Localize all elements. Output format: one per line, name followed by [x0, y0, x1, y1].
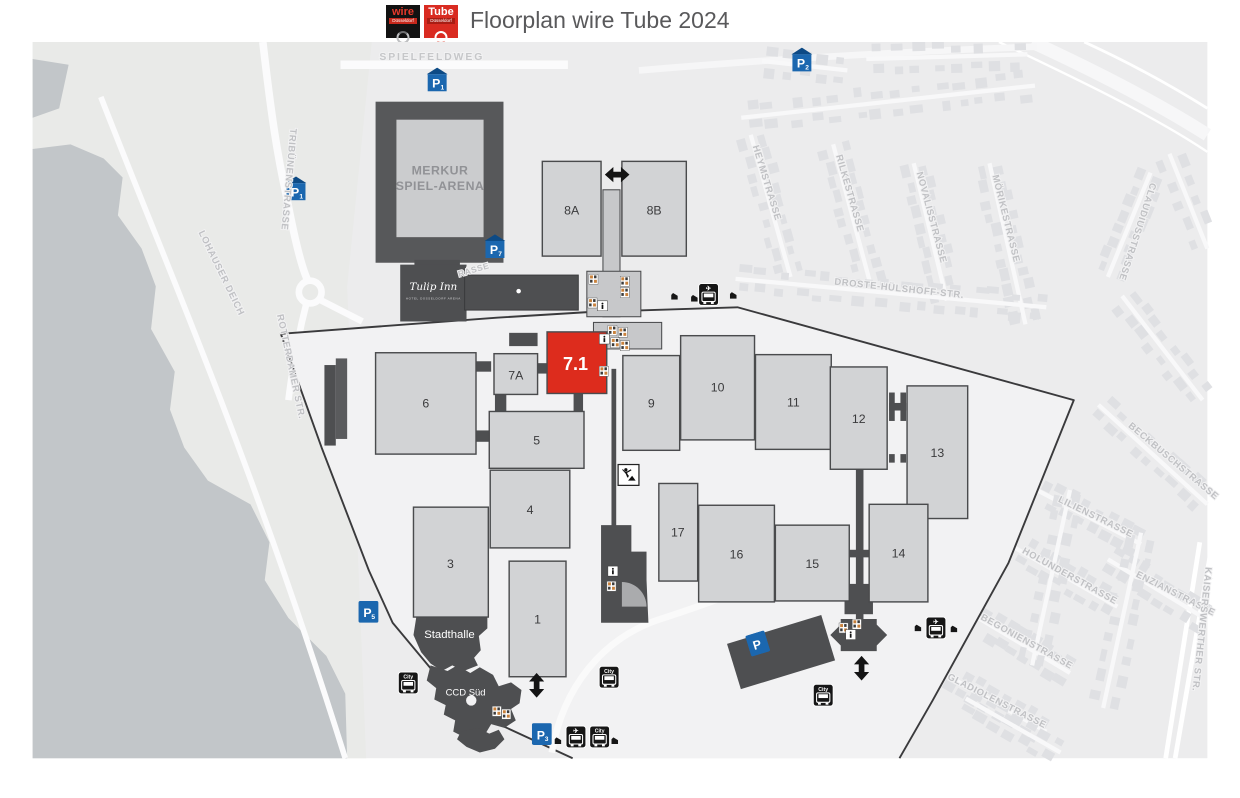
- svg-text:12: 12: [852, 412, 866, 426]
- svg-text:P: P: [490, 243, 498, 257]
- house: [891, 44, 903, 51]
- house: [951, 64, 962, 73]
- house: [805, 270, 816, 277]
- hall-7a[interactable]: 7A: [494, 354, 538, 395]
- house: [858, 112, 867, 119]
- house: [997, 308, 1008, 315]
- street-label: SPIELFELDWEG: [379, 52, 484, 63]
- connector: [889, 454, 895, 463]
- hall-12[interactable]: 12: [830, 367, 887, 469]
- parkhaus-strip: [465, 275, 579, 310]
- hall-10[interactable]: 10: [681, 336, 755, 440]
- hall-5[interactable]: 5: [489, 411, 584, 468]
- house: [871, 91, 884, 99]
- escalator-icon: [589, 274, 598, 284]
- house: [955, 306, 966, 315]
- connector: [889, 403, 906, 411]
- info-icon: [597, 301, 607, 311]
- house: [812, 112, 824, 121]
- connector: [476, 430, 490, 441]
- svg-text:5: 5: [371, 614, 375, 621]
- svg-text:City: City: [595, 729, 605, 735]
- escalator-icon: [620, 276, 629, 286]
- connector: [574, 393, 583, 412]
- house: [826, 95, 838, 104]
- hall-6[interactable]: 6: [376, 353, 476, 454]
- house: [820, 271, 830, 281]
- parking-p3-icon[interactable]: P 3: [532, 723, 552, 745]
- svg-text:7: 7: [498, 251, 502, 258]
- hall-15[interactable]: 15: [775, 525, 849, 601]
- house: [875, 298, 888, 308]
- connector: [495, 394, 506, 412]
- house: [1020, 94, 1033, 103]
- house: [989, 61, 1001, 71]
- stand-building: [336, 358, 347, 439]
- city-bus-icon: City: [813, 684, 833, 706]
- hall-8b[interactable]: 8B: [622, 161, 686, 256]
- house: [872, 43, 881, 51]
- house: [932, 42, 944, 49]
- merkur-spiel-arena: MERKUR SPIEL-ARENA: [376, 102, 504, 263]
- tube-logo-text: Tube: [424, 6, 458, 18]
- escalator-icon: [620, 340, 629, 350]
- house: [754, 283, 765, 292]
- hall-17[interactable]: 17: [659, 483, 698, 581]
- house: [763, 68, 775, 79]
- house: [833, 76, 843, 83]
- svg-text:5: 5: [533, 434, 540, 448]
- house: [895, 66, 903, 74]
- wire-logo-city: Düsseldorf: [389, 18, 417, 24]
- house: [816, 54, 829, 66]
- svg-text:P: P: [363, 606, 371, 620]
- svg-text:8A: 8A: [564, 203, 580, 217]
- house: [969, 307, 978, 318]
- house: [829, 295, 842, 302]
- svg-text:P: P: [432, 76, 440, 90]
- house: [1120, 558, 1130, 568]
- hall-3[interactable]: 3: [413, 507, 488, 617]
- svg-text:1: 1: [534, 613, 541, 627]
- escalator-icon: [588, 298, 597, 308]
- house: [853, 87, 862, 97]
- house: [1008, 312, 1021, 322]
- house: [797, 288, 810, 296]
- house: [873, 64, 884, 74]
- info-icon: [845, 629, 855, 639]
- house: [1103, 632, 1113, 642]
- house: [974, 43, 983, 53]
- escalator-icon: [852, 619, 861, 629]
- info-icon: [599, 334, 609, 344]
- hall-1[interactable]: 1: [509, 561, 566, 677]
- house: [749, 118, 763, 127]
- svg-text:17: 17: [671, 526, 685, 540]
- house: [766, 46, 779, 57]
- svg-text:P: P: [537, 728, 545, 742]
- house: [851, 296, 864, 307]
- svg-text:14: 14: [892, 546, 906, 560]
- house: [782, 72, 791, 80]
- house: [942, 101, 951, 112]
- house: [1037, 294, 1047, 302]
- arena-label: SPIEL-ARENA: [396, 179, 485, 193]
- wire-logo: wire Düsseldorf: [386, 5, 420, 38]
- svg-text:1: 1: [441, 84, 445, 91]
- svg-text:✈: ✈: [706, 285, 712, 293]
- hall-9[interactable]: 9: [623, 356, 680, 451]
- house: [812, 295, 822, 302]
- hall-11[interactable]: 11: [755, 355, 831, 450]
- svg-text:✈: ✈: [933, 618, 939, 626]
- escalator-icon: [611, 338, 620, 348]
- svg-text:4: 4: [527, 503, 534, 517]
- header: wire Düsseldorf Tube Düsseldorf Floorpla…: [0, 0, 1240, 42]
- house: [781, 272, 789, 280]
- airport-bus-icon: ✈: [566, 726, 586, 748]
- house: [995, 73, 1006, 81]
- house: [961, 99, 969, 106]
- tulip-inn-hotel: Tulip Inn HOTEL DÜSSELDORF ARENA: [400, 265, 466, 322]
- airport-bus-icon: ✈: [699, 284, 719, 306]
- house: [764, 118, 778, 129]
- house: [759, 102, 772, 110]
- svg-text:City: City: [604, 669, 614, 675]
- house: [792, 97, 803, 108]
- svg-text:15: 15: [805, 557, 819, 571]
- house: [909, 104, 923, 114]
- house: [753, 267, 766, 275]
- info-icon: [608, 566, 618, 576]
- svg-text:16: 16: [730, 547, 744, 561]
- svg-text:8B: 8B: [647, 203, 662, 217]
- svg-text:9: 9: [648, 397, 655, 411]
- house: [933, 305, 945, 314]
- stadthalle-label: Stadthalle: [424, 629, 475, 641]
- svg-text:City: City: [818, 687, 828, 693]
- house: [974, 97, 983, 104]
- tulip-inn-sublabel: HOTEL DÜSSELDORF ARENA: [406, 297, 461, 301]
- small-dark-building: [509, 333, 537, 346]
- house: [899, 302, 911, 312]
- house: [739, 283, 748, 291]
- svg-text:6: 6: [422, 397, 429, 411]
- house: [1015, 43, 1026, 50]
- strip-dot: [516, 289, 521, 294]
- house: [889, 90, 900, 99]
- house: [815, 74, 827, 84]
- svg-text:7A: 7A: [508, 368, 524, 382]
- escalator-icon: [620, 287, 629, 297]
- house: [1012, 294, 1021, 301]
- parking-p5-icon[interactable]: P 5: [359, 601, 379, 623]
- city-bus-icon: City: [599, 666, 619, 688]
- page-title: Floorplan wire Tube 2024: [470, 7, 730, 34]
- tube-logo-city: Düsseldorf: [427, 18, 455, 24]
- house: [747, 100, 759, 110]
- house: [836, 57, 844, 65]
- svg-text:10: 10: [711, 381, 725, 395]
- floorplan-map: MERKUR SPIEL-ARENA Tulip Inn HOTEL DÜSSE…: [0, 42, 1240, 798]
- hall-13[interactable]: 13: [907, 386, 968, 519]
- house: [912, 42, 925, 51]
- house: [869, 108, 882, 120]
- hall-16[interactable]: 16: [699, 505, 775, 602]
- stand-building: [324, 365, 335, 446]
- airport-bus-icon: ✈: [926, 617, 946, 639]
- wire-logo-text: wire: [386, 6, 420, 18]
- house: [1047, 534, 1058, 545]
- house: [791, 120, 803, 129]
- walkway: [611, 369, 616, 526]
- city-bus-icon: City: [590, 726, 610, 748]
- house: [975, 77, 988, 88]
- construction-icon: [618, 465, 639, 486]
- hall-7-1[interactable]: 7.1: [547, 332, 607, 394]
- house: [935, 65, 945, 71]
- svg-text:1: 1: [299, 193, 303, 200]
- svg-text:2: 2: [805, 64, 809, 71]
- svg-text:7.1: 7.1: [563, 354, 588, 374]
- escalator-icon: [607, 581, 616, 591]
- svg-text:3: 3: [545, 736, 549, 743]
- house: [971, 62, 982, 69]
- svg-text:P: P: [797, 57, 805, 71]
- house: [937, 82, 949, 90]
- hall-8a[interactable]: 8A: [542, 161, 601, 256]
- escalator-icon: [492, 706, 501, 716]
- escalator-icon: [502, 709, 511, 719]
- house: [951, 45, 961, 52]
- connector: [476, 361, 491, 371]
- arena-label: MERKUR: [412, 164, 469, 178]
- house: [909, 66, 919, 73]
- house: [893, 108, 904, 116]
- house: [812, 97, 821, 106]
- svg-text:11: 11: [787, 396, 800, 410]
- house: [1010, 62, 1020, 72]
- svg-text:City: City: [403, 675, 413, 681]
- floorplan-page: wire Düsseldorf Tube Düsseldorf Floorpla…: [0, 0, 1240, 798]
- tube-logo: Tube Düsseldorf: [424, 5, 458, 38]
- ccd-sued-label: CCD Süd: [446, 688, 486, 699]
- svg-text:✈: ✈: [573, 727, 579, 735]
- escalator-icon: [599, 366, 608, 376]
- house: [952, 82, 965, 90]
- house: [917, 301, 926, 311]
- house: [1030, 313, 1040, 320]
- house: [911, 85, 919, 92]
- escalator-icon: [618, 327, 627, 337]
- tulip-inn-label: Tulip Inn: [409, 281, 457, 293]
- hall-4[interactable]: 4: [490, 470, 570, 548]
- svg-text:3: 3: [447, 557, 454, 571]
- house: [994, 92, 1005, 101]
- house: [774, 288, 784, 297]
- house: [986, 286, 999, 294]
- city-bus-icon: City: [398, 672, 418, 694]
- svg-text:13: 13: [931, 446, 945, 460]
- house: [739, 264, 752, 273]
- connector: [900, 454, 906, 463]
- connector: [847, 550, 871, 558]
- hall-14[interactable]: 14: [869, 504, 928, 602]
